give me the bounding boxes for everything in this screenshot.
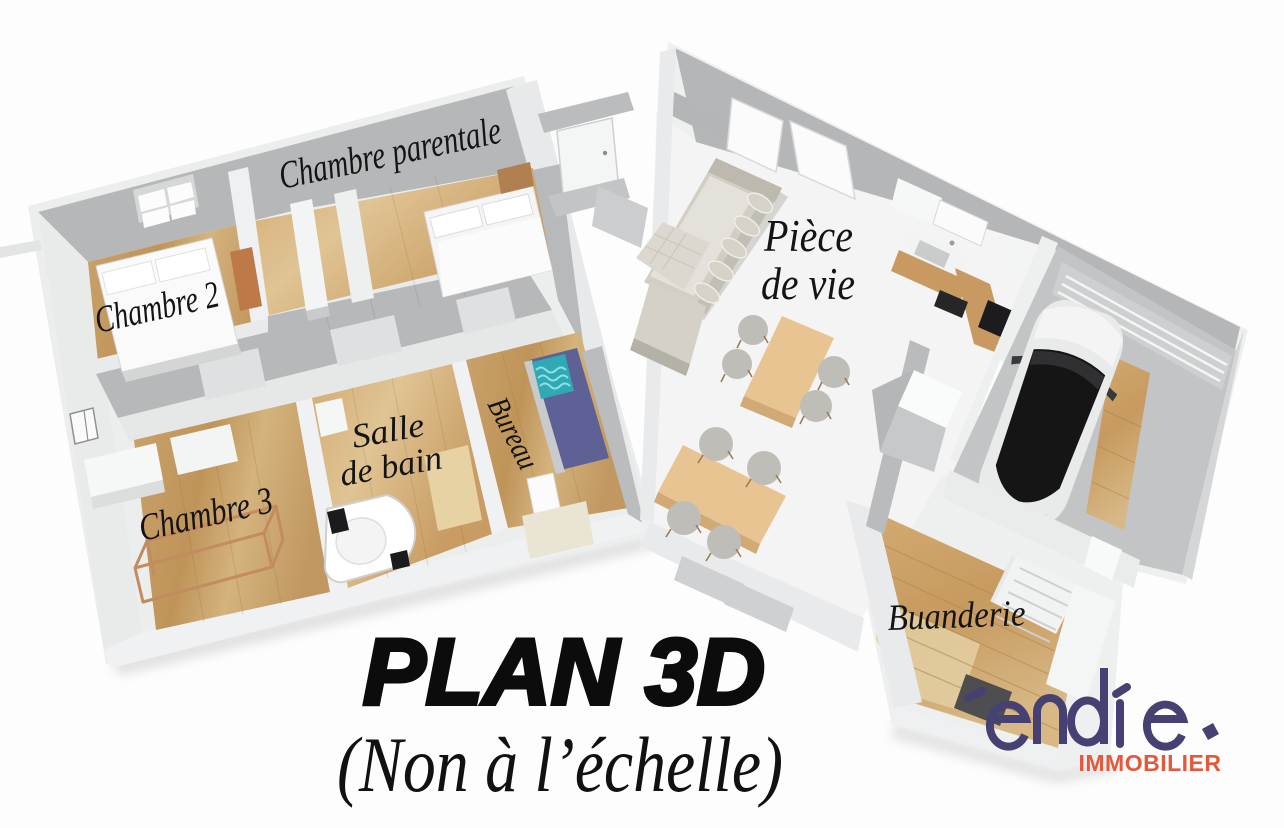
- svg-text:IMMOBILIER: IMMOBILIER: [1079, 750, 1222, 776]
- svg-text:PLAN 3D: PLAN 3D: [363, 619, 765, 724]
- svg-text:de vie: de vie: [761, 259, 855, 309]
- svg-text:Buanderie: Buanderie: [887, 593, 1026, 639]
- svg-text:Pièce: Pièce: [763, 211, 853, 261]
- svg-text:(Non à l’échelle): (Non à l’échelle): [337, 721, 783, 808]
